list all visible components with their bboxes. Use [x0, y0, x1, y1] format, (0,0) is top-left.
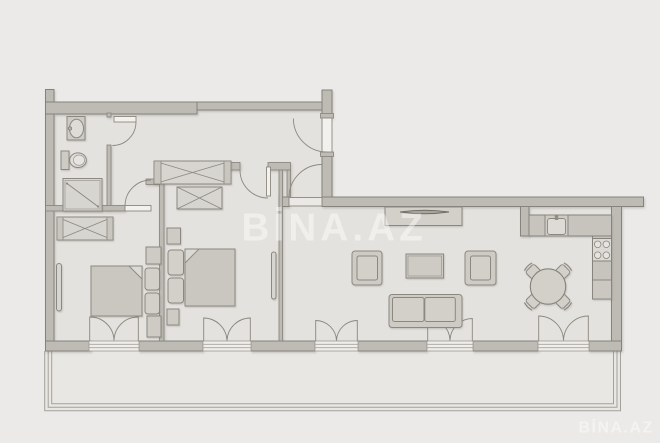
svg-text:BİNA.AZ: BİNA.AZ	[579, 419, 654, 437]
svg-text:BİNA.AZ: BİNA.AZ	[242, 207, 428, 250]
